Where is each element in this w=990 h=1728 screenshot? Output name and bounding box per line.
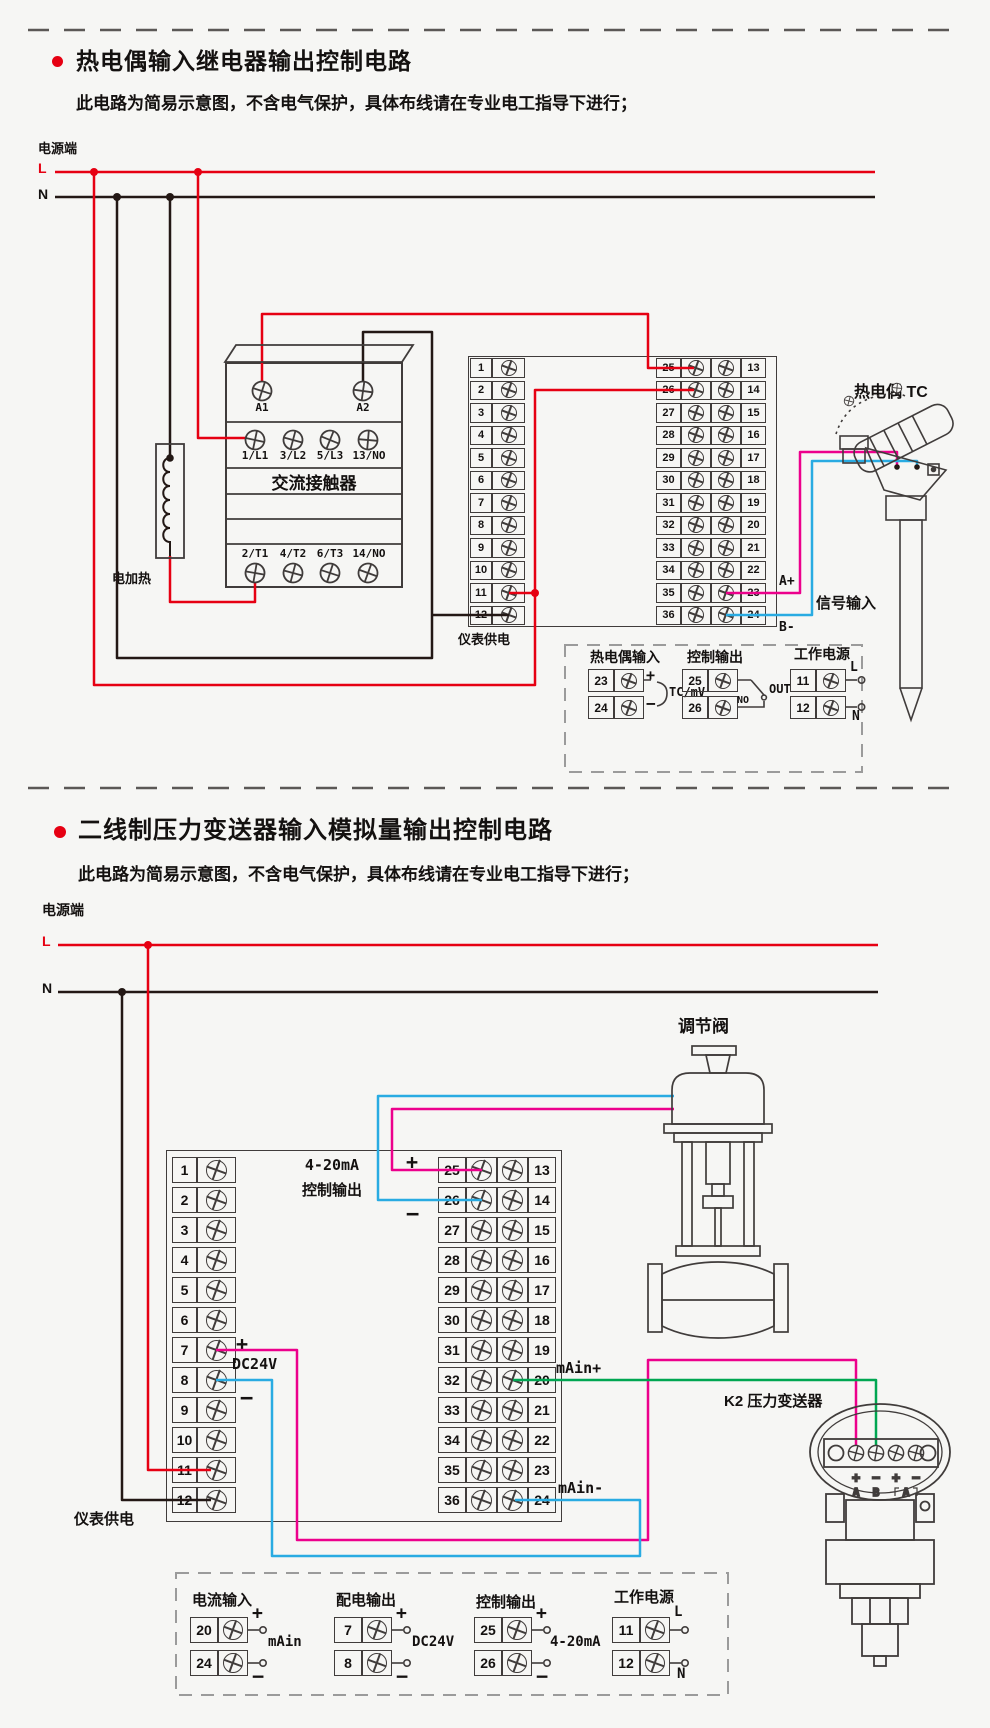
s1-legend-power-title: 工作电源 (794, 644, 850, 664)
terminal-row: 2614 (438, 1187, 556, 1213)
contactor-a1-label: A1 (248, 401, 276, 414)
terminal-number: 31 (438, 1337, 466, 1363)
terminal-row: 11 (470, 583, 525, 603)
legend-l-label: L (674, 1604, 682, 1620)
legend-no-contact-label: NO (737, 695, 749, 706)
contactor-terminal-label: 1/L1 (234, 449, 276, 462)
terminal-number: 30 (656, 471, 681, 491)
terminal-screw (197, 1367, 236, 1393)
terminal-screw (711, 471, 741, 491)
terminal-screw (466, 1367, 497, 1393)
s2-main-minus-label: mAin- (558, 1479, 603, 1497)
s2-power-terminal-label: 电源端 (42, 900, 84, 920)
screw-icon (823, 700, 839, 716)
terminal-number: 6 (470, 471, 492, 491)
terminal-row: 12 (470, 606, 525, 626)
terminal-row: 4 (470, 426, 525, 446)
screw-icon (502, 1310, 523, 1331)
terminal-number: 15 (741, 403, 766, 423)
terminal-screw (197, 1397, 236, 1423)
terminal-number: 4 (470, 426, 492, 446)
terminal-number: 28 (656, 426, 681, 446)
transmitter-sign: − (912, 1471, 920, 1486)
terminal-number: 4 (172, 1247, 197, 1273)
terminal-screw (497, 1427, 528, 1453)
screw-icon (718, 585, 734, 601)
terminal-number: 16 (741, 426, 766, 446)
section2-bullet-icon (54, 826, 66, 838)
screw-icon (206, 1430, 227, 1451)
terminal-screw (681, 606, 711, 626)
terminal-number: 2 (172, 1187, 197, 1213)
s2-live-dot (144, 941, 152, 949)
screw-icon (715, 673, 731, 689)
terminal-screw (197, 1217, 236, 1243)
screw-icon (718, 360, 734, 376)
legend-plus-sign: + (396, 1603, 407, 1624)
legend-terminal-screw (362, 1650, 392, 1676)
screw-icon (718, 495, 734, 511)
terminal-screw (497, 1217, 528, 1243)
terminal-number: 33 (656, 538, 681, 558)
legend-terminal-screw (614, 669, 644, 692)
s2-line-n-label: N (42, 980, 52, 996)
screw-icon (471, 1430, 492, 1451)
terminal-screw (492, 426, 525, 446)
screw-icon (501, 607, 517, 623)
terminal-row: 3119 (438, 1337, 556, 1363)
legend-terminal-screw (614, 696, 644, 719)
s1-signal-a-plus-label: A+ (779, 574, 795, 589)
screw-icon (502, 1220, 523, 1241)
terminal-screw (711, 381, 741, 401)
s2-terminal25-plus: + (406, 1150, 418, 1174)
terminal-screw (497, 1337, 528, 1363)
terminal-screw (681, 561, 711, 581)
screw-icon (223, 1620, 243, 1640)
terminal-row: 2816 (656, 426, 766, 446)
screw-icon (688, 585, 704, 601)
terminal-number: 14 (528, 1187, 556, 1213)
terminal-row: 3624 (656, 606, 766, 626)
terminal-screw (197, 1487, 236, 1513)
contactor-terminal-label: 2/T1 (234, 547, 276, 560)
screw-icon (501, 495, 517, 511)
s1-power-terminal-label: 电源端 (38, 138, 77, 157)
legend-terminal-number: 26 (682, 696, 708, 719)
terminal-number: 28 (438, 1247, 466, 1273)
legend-terminal-number: 7 (334, 1617, 362, 1643)
terminal-row: 1 (172, 1157, 236, 1183)
screw-icon (621, 673, 637, 689)
terminal-number: 27 (656, 403, 681, 423)
terminal-screw (497, 1487, 528, 1513)
terminal-number: 1 (172, 1157, 197, 1183)
s2-terminal8-minus: − (240, 1386, 253, 1411)
terminal-screw (466, 1307, 497, 1333)
s1-legend-tc-title: 热电偶输入 (590, 647, 660, 667)
s1-instrument-supply-label: 仪表供电 (458, 629, 510, 648)
s1-signal-b-minus-label: B- (779, 620, 795, 635)
s2-legend-dist-title: 配电输出 (336, 1589, 396, 1610)
screw-icon (471, 1160, 492, 1181)
screw-icon (688, 562, 704, 578)
transmitter-sign: + (852, 1471, 860, 1486)
terminal-screw (197, 1427, 236, 1453)
transmitter-channel-b: B (873, 1486, 880, 1499)
screw-icon (206, 1250, 227, 1271)
terminal-number: 23 (741, 583, 766, 603)
terminal-row: 2715 (656, 403, 766, 423)
terminal-screw (197, 1247, 236, 1273)
legend-terminal-number: 11 (612, 1617, 640, 1643)
screw-icon (501, 405, 517, 421)
terminal-screw (497, 1157, 528, 1183)
screw-icon (502, 1430, 523, 1451)
terminal-screw (466, 1487, 497, 1513)
terminal-screw (681, 426, 711, 446)
legend-terminal-screw (218, 1650, 248, 1676)
terminal-number: 29 (438, 1277, 466, 1303)
legend-terminal-number: 20 (190, 1617, 218, 1643)
terminal-row: 3220 (438, 1367, 556, 1393)
legend-terminal-screw (502, 1650, 532, 1676)
legend-terminal-screw (816, 669, 846, 692)
screw-icon (718, 405, 734, 421)
s2-line-l-label: L (42, 933, 51, 949)
heater-drawing (156, 444, 184, 558)
legend-minus-sign: − (396, 1664, 408, 1688)
terminal-row: 3523 (656, 583, 766, 603)
section1-bullet-icon (52, 56, 63, 67)
terminal-screw (497, 1247, 528, 1273)
terminal-number: 23 (528, 1457, 556, 1483)
terminal-row: 2816 (438, 1247, 556, 1273)
terminal-number: 19 (741, 493, 766, 513)
legend-terminal-number: 25 (474, 1617, 502, 1643)
section1-title: 热电偶输入继电器输出控制电路 (76, 42, 412, 76)
contactor-terminal-label: 4/T2 (272, 547, 314, 560)
screw-icon (206, 1190, 227, 1211)
terminal-number: 11 (470, 583, 492, 603)
s2-legend-power-title: 工作电源 (614, 1586, 674, 1607)
contactor-terminal-label: 13/NO (347, 449, 391, 462)
terminal-number: 30 (438, 1307, 466, 1333)
terminal-number: 26 (656, 381, 681, 401)
terminal-screw (681, 493, 711, 513)
legend-n-label: N (852, 709, 860, 724)
screw-icon (718, 562, 734, 578)
s1-left-terminal-strip: 123456789101112 (470, 358, 525, 625)
screw-icon (645, 1620, 665, 1640)
wiring-diagram-page: 热电偶输入继电器输出控制电路 此电路为简易示意图，不含电气保护，具体布线请在专业… (0, 0, 990, 1728)
terminal-number: 9 (470, 538, 492, 558)
terminal-number: 16 (528, 1247, 556, 1273)
terminal-row: 2 (172, 1187, 236, 1213)
legend-terminal-number: 24 (190, 1650, 218, 1676)
screw-icon (501, 382, 517, 398)
terminal-number: 1 (470, 358, 492, 378)
terminal-row: 2513 (438, 1157, 556, 1183)
terminal-number: 12 (470, 606, 492, 626)
terminal-number: 29 (656, 448, 681, 468)
screw-icon (688, 360, 704, 376)
section2-title: 二线制压力变送器输入模拟量输出控制电路 (78, 810, 553, 845)
terminal-screw (492, 516, 525, 536)
section2-subtitle: 此电路为简易示意图，不含电气保护，具体布线请在专业电工指导下进行； (78, 860, 639, 885)
screw-icon (367, 1620, 387, 1640)
contactor-terminal-label: 3/L2 (272, 449, 314, 462)
terminal-screw (711, 561, 741, 581)
terminal-screw (466, 1247, 497, 1273)
terminal-number: 19 (528, 1337, 556, 1363)
terminal-number: 21 (528, 1397, 556, 1423)
screw-icon (501, 540, 517, 556)
terminal-screw (497, 1187, 528, 1213)
terminal-row: 3422 (656, 561, 766, 581)
screw-icon (502, 1370, 523, 1391)
screw-icon (223, 1653, 243, 1673)
screw-icon (471, 1280, 492, 1301)
terminal-screw (492, 358, 525, 378)
screw-icon (718, 607, 734, 623)
terminal-row: 12 (172, 1487, 236, 1513)
terminal-number: 26 (438, 1187, 466, 1213)
screw-icon (206, 1400, 227, 1421)
transmitter-channel-a2: A (903, 1486, 910, 1499)
terminal-screw (681, 358, 711, 378)
screw-icon (501, 562, 517, 578)
legend-terminal-screw (362, 1617, 392, 1643)
terminal-screw (681, 583, 711, 603)
screw-icon (206, 1310, 227, 1331)
s2-main-plus-label: mAin+ (556, 1359, 601, 1377)
screw-icon (688, 382, 704, 398)
screw-icon (471, 1490, 492, 1511)
heater-label: 电加热 (112, 568, 151, 587)
s1-right-terminal-strip: 2513261427152816291730183119322033213422… (656, 358, 766, 625)
legend-terminal-number: 24 (588, 696, 614, 719)
contactor-terminal-label: 6/T3 (309, 547, 351, 560)
legend-terminal-screw (640, 1650, 670, 1676)
screw-icon (718, 382, 734, 398)
terminal-number: 8 (172, 1367, 197, 1393)
contactor-terminal-label: 5/L3 (309, 449, 351, 462)
terminal-number: 32 (438, 1367, 466, 1393)
screw-icon (502, 1190, 523, 1211)
terminal-number: 27 (438, 1217, 466, 1243)
legend-terminal-screw (708, 696, 738, 719)
terminal-number: 34 (656, 561, 681, 581)
screw-icon (502, 1460, 523, 1481)
screw-icon (501, 585, 517, 601)
terminal-number: 22 (528, 1427, 556, 1453)
legend-plus-sign: + (536, 1603, 547, 1624)
screw-icon (501, 517, 517, 533)
pressure-transmitter-drawing: + − + − A B A (810, 1404, 950, 1666)
screw-icon (206, 1160, 227, 1181)
terminal-screw (492, 561, 525, 581)
legend-l-label: L (850, 660, 858, 675)
screw-icon (501, 427, 517, 443)
terminal-screw (711, 538, 741, 558)
screw-icon (471, 1460, 492, 1481)
terminal-screw (711, 493, 741, 513)
terminal-screw (497, 1457, 528, 1483)
terminal-row: 3018 (438, 1307, 556, 1333)
terminal-screw (681, 471, 711, 491)
legend-terminal-screw (218, 1617, 248, 1643)
terminal-row: 8 (172, 1367, 236, 1393)
control-valve-drawing (648, 1046, 788, 1338)
thermocouple-label: 热电偶 TC (854, 378, 928, 402)
s2-legend-ctrl-title: 控制输出 (476, 1591, 536, 1612)
pressure-transmitter-label: K2 压力变送器 (724, 1390, 822, 1411)
terminal-row: 3523 (438, 1457, 556, 1483)
terminal-number: 17 (741, 448, 766, 468)
screw-icon (471, 1340, 492, 1361)
terminal-number: 7 (172, 1337, 197, 1363)
terminal-row: 10 (470, 561, 525, 581)
s2-terminal26-minus: − (406, 1202, 419, 1227)
terminal-number: 36 (656, 606, 681, 626)
s1-legend-output-title: 控制输出 (687, 647, 743, 667)
terminal-screw (497, 1367, 528, 1393)
terminal-screw (497, 1307, 528, 1333)
terminal-number: 10 (172, 1427, 197, 1453)
screw-icon (471, 1310, 492, 1331)
legend-terminal-screw (816, 696, 846, 719)
terminal-screw (466, 1427, 497, 1453)
terminal-screw (197, 1187, 236, 1213)
s1-line-n-label: N (38, 186, 48, 202)
terminal-row: 1 (470, 358, 525, 378)
screw-icon (688, 472, 704, 488)
screw-icon (688, 405, 704, 421)
terminal-screw (681, 516, 711, 536)
screw-icon (471, 1400, 492, 1421)
screw-icon (367, 1653, 387, 1673)
terminal-screw (711, 403, 741, 423)
terminal-number: 25 (438, 1157, 466, 1183)
screw-icon (718, 472, 734, 488)
terminal-number: 35 (438, 1457, 466, 1483)
terminal-screw (711, 583, 741, 603)
terminal-row: 9 (172, 1397, 236, 1423)
legend-terminal-number: 26 (474, 1650, 502, 1676)
terminal-screw (197, 1157, 236, 1183)
terminal-number: 12 (172, 1487, 197, 1513)
terminal-number: 8 (470, 516, 492, 536)
terminal-row: 7 (470, 493, 525, 513)
legend-minus-sign: − (536, 1664, 548, 1688)
screw-icon (502, 1340, 523, 1361)
legend-dc-note: DC24V (412, 1634, 454, 1650)
s2-output-range-label: 4-20mA (292, 1156, 372, 1174)
terminal-screw (711, 358, 741, 378)
screw-icon (718, 540, 734, 556)
terminal-number: 15 (528, 1217, 556, 1243)
terminal-row: 5 (172, 1277, 236, 1303)
terminal-number: 14 (741, 381, 766, 401)
terminal-number: 24 (741, 606, 766, 626)
transmitter-sign: + (892, 1471, 900, 1486)
legend-plus-sign: + (646, 666, 655, 684)
terminal-screw (681, 538, 711, 558)
terminal-screw (497, 1397, 528, 1423)
s2-right-terminal-strip: 2513261427152816291730183119322033213422… (438, 1157, 556, 1513)
screw-icon (501, 472, 517, 488)
terminal-row: 2917 (656, 448, 766, 468)
legend-terminal-number: 11 (790, 669, 816, 692)
terminal-screw (711, 606, 741, 626)
s2-left-terminal-strip: 123456789101112 (172, 1157, 236, 1513)
terminal-screw (492, 381, 525, 401)
screw-icon (471, 1250, 492, 1271)
terminal-row: 3220 (656, 516, 766, 536)
transmitter-channel-a: A (853, 1486, 860, 1499)
screw-icon (688, 540, 704, 556)
section1-subtitle: 此电路为简易示意图，不含电气保护，具体布线请在专业电工指导下进行； (76, 89, 637, 114)
contactor-terminal-label: 14/NO (347, 547, 391, 560)
terminal-number: 32 (656, 516, 681, 536)
terminal-row: 3119 (656, 493, 766, 513)
screw-icon (502, 1160, 523, 1181)
legend-plus-sign: + (252, 1603, 263, 1624)
legend-terminal-number: 12 (790, 696, 816, 719)
terminal-row: 9 (470, 538, 525, 558)
terminal-row: 3422 (438, 1427, 556, 1453)
screw-icon (206, 1220, 227, 1241)
terminal-number: 20 (741, 516, 766, 536)
terminal-screw (681, 403, 711, 423)
screw-icon (471, 1370, 492, 1391)
terminal-screw (492, 448, 525, 468)
contactor-name-label: 交流接触器 (264, 469, 364, 494)
terminal-screw (197, 1307, 236, 1333)
terminal-number: 3 (172, 1217, 197, 1243)
terminal-number: 7 (470, 493, 492, 513)
terminal-number: 9 (172, 1397, 197, 1423)
screw-icon (471, 1190, 492, 1211)
terminal-number: 11 (172, 1457, 197, 1483)
s2-instrument-supply-label: 仪表供电 (74, 1508, 134, 1529)
terminal-number: 5 (470, 448, 492, 468)
terminal-row: 2917 (438, 1277, 556, 1303)
terminal-screw (711, 516, 741, 536)
terminal-row: 3624 (438, 1487, 556, 1513)
terminal-number: 13 (741, 358, 766, 378)
control-valve-label: 调节阀 (678, 1012, 729, 1037)
screw-icon (688, 517, 704, 533)
legend-terminal-number: 12 (612, 1650, 640, 1676)
legend-terminal-screw (640, 1617, 670, 1643)
terminal-row: 3321 (656, 538, 766, 558)
terminal-screw (466, 1397, 497, 1423)
terminal-screw (197, 1337, 236, 1363)
terminal-screw (466, 1337, 497, 1363)
terminal-number: 5 (172, 1277, 197, 1303)
screw-icon (621, 700, 637, 716)
terminal-screw (492, 493, 525, 513)
transmitter-sign: − (872, 1471, 880, 1486)
terminal-number: 33 (438, 1397, 466, 1423)
terminal-number: 36 (438, 1487, 466, 1513)
legend-terminal-screw (502, 1617, 532, 1643)
terminal-number: 3 (470, 403, 492, 423)
terminal-screw (681, 448, 711, 468)
contactor-a2-label: A2 (349, 401, 377, 414)
